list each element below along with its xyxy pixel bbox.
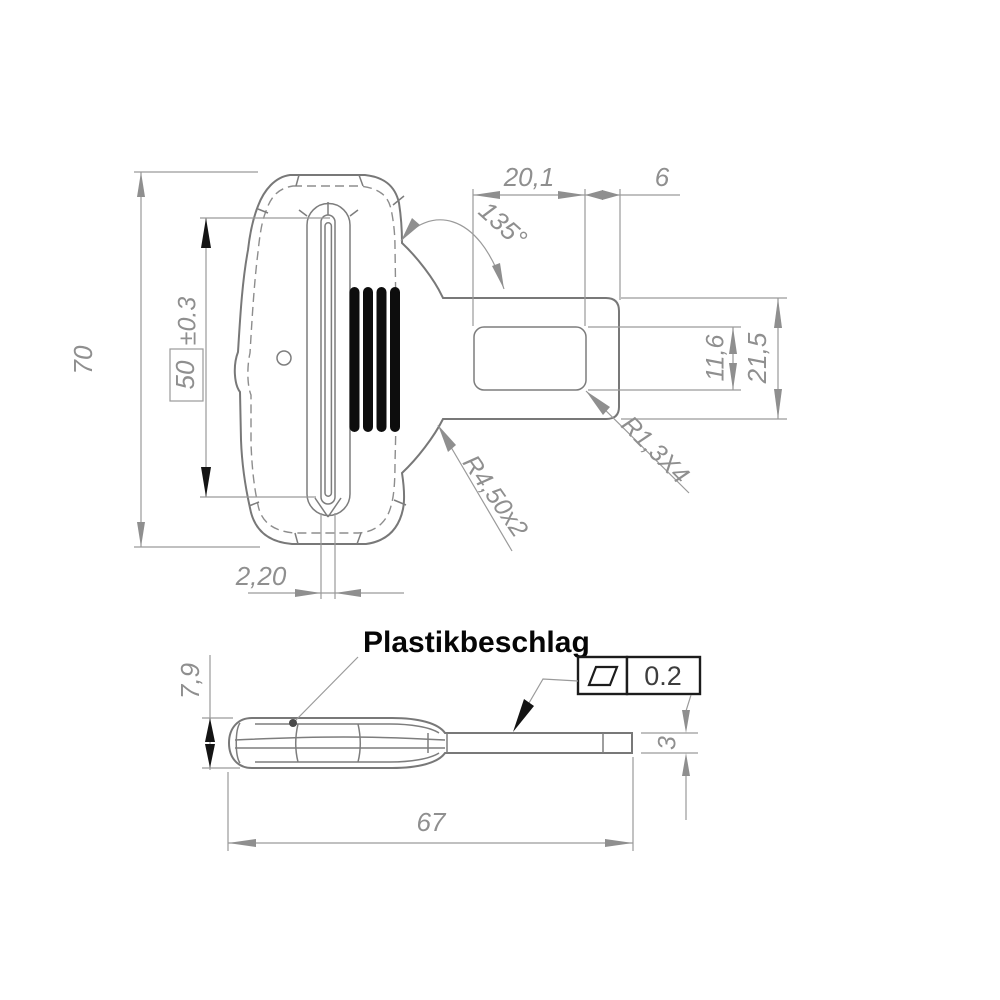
part-label-leader — [295, 657, 358, 721]
r4-50x2-label: R4,50x2 — [457, 450, 533, 542]
front-pin-hole — [277, 351, 291, 365]
flatness-frame: 0.2 — [513, 657, 700, 732]
dim-7-9-label: 7,9 — [175, 663, 205, 699]
flatness-leader-arrow — [513, 699, 534, 732]
side-inner-detail — [235, 723, 603, 763]
dim-50-tolerance: ±0.3 — [174, 297, 202, 346]
front-center-slot-inner — [325, 223, 331, 496]
dim-3-label: 3 — [654, 736, 682, 750]
dim-20-1: 20,1 — [473, 162, 585, 326]
front-view: 70 50 ±0.3 20,1 6 — [68, 162, 787, 599]
dim-21-5-label: 21,5 — [742, 332, 772, 384]
front-channel-ring — [307, 204, 350, 516]
dim-135: 135° — [401, 195, 533, 289]
side-body-outline — [229, 718, 632, 768]
dim-20-1-label: 20,1 — [503, 162, 555, 192]
dim-3: 3 — [641, 710, 698, 820]
dim-6: 6 — [585, 162, 680, 300]
front-body-outline — [235, 175, 619, 544]
dim-6-label: 6 — [655, 162, 670, 192]
callout-r1-3x4: R1,3X4 — [586, 391, 694, 493]
technical-drawing-page: 70 50 ±0.3 20,1 6 — [0, 0, 1000, 1000]
rib-3 — [377, 287, 387, 432]
part-name-label: Plastikbeschlag — [363, 626, 590, 659]
dim-50: 50 ±0.3 — [170, 218, 330, 497]
rib-4 — [390, 287, 400, 432]
dim-2-20: 2,20 — [235, 513, 404, 599]
flatness-symbol-cell — [578, 657, 627, 694]
dim-67-label: 67 — [417, 807, 447, 837]
callout-r4-50x2: R4,50x2 — [438, 425, 533, 551]
front-parting-line — [248, 186, 396, 533]
part-label-leader-dot — [289, 719, 297, 727]
dim-11-6-label: 11,6 — [702, 335, 730, 382]
strap-cutout — [474, 327, 586, 390]
front-center-slot — [321, 215, 335, 504]
dim-70: 70 — [68, 172, 260, 547]
dim-67: 67 — [228, 757, 633, 851]
flatness-leader — [529, 679, 578, 703]
rib-1 — [350, 287, 360, 432]
part-label-group: Plastikbeschlag — [289, 626, 590, 727]
technical-drawing-canvas: 70 50 ±0.3 20,1 6 — [0, 0, 1000, 1000]
flatness-value-label: 0.2 — [644, 661, 682, 691]
flatness-frame-to-dim3 — [686, 695, 691, 711]
dim-2-20-label: 2,20 — [235, 561, 287, 591]
dim-70-label: 70 — [68, 345, 98, 374]
side-view: Plastikbeschlag 0.2 7,9 — [175, 626, 700, 851]
front-channel-ticks — [299, 202, 358, 517]
dim-50-label: 50 — [170, 360, 200, 389]
rib-2 — [363, 287, 373, 432]
r1-3x4-label: R1,3X4 — [616, 411, 695, 490]
dim-11-6: 11,6 — [588, 327, 741, 390]
front-grip-ribs — [350, 287, 401, 432]
